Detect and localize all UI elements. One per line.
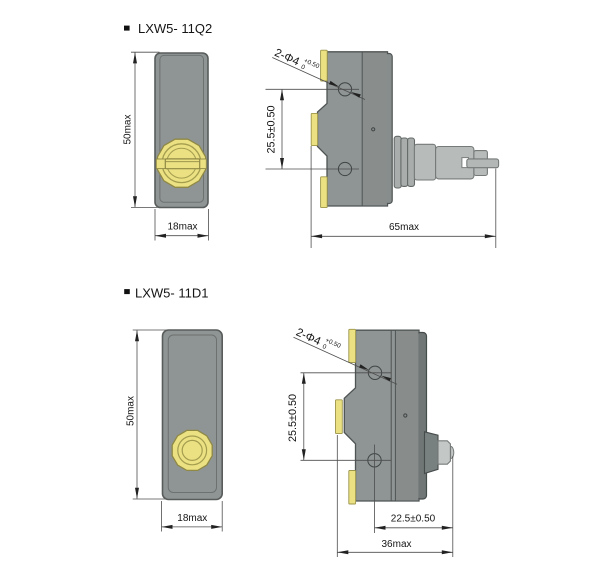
svg-text:50max: 50max (125, 396, 136, 426)
svg-text:22.5±0.50: 22.5±0.50 (391, 513, 436, 524)
svg-text:50max: 50max (123, 114, 134, 144)
svg-text:18max: 18max (177, 513, 207, 524)
svg-text:LXW5- 11D1: LXW5- 11D1 (135, 286, 208, 301)
svg-text:18max: 18max (167, 221, 197, 232)
svg-text:25.5±0.50: 25.5±0.50 (287, 394, 299, 442)
svg-text:36max: 36max (381, 539, 411, 550)
svg-text:25.5±0.50: 25.5±0.50 (265, 106, 277, 154)
svg-text:65max: 65max (389, 222, 419, 233)
svg-text:LXW5- 11Q2: LXW5- 11Q2 (138, 21, 212, 36)
